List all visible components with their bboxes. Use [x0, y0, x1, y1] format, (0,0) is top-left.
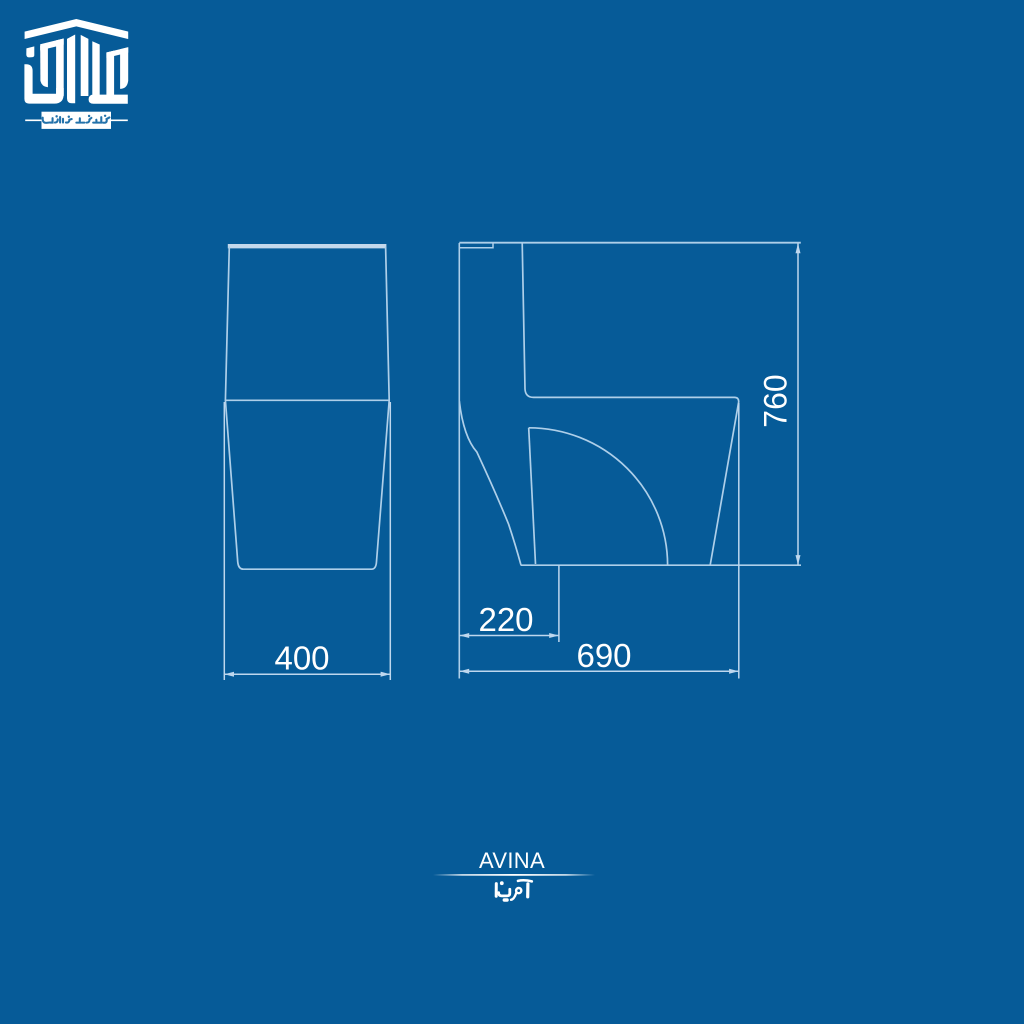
svg-text:AVINA: AVINA — [479, 848, 545, 873]
svg-text:220: 220 — [478, 601, 533, 638]
svg-text:400: 400 — [274, 640, 329, 677]
svg-text:690: 690 — [576, 637, 631, 674]
svg-text:760: 760 — [758, 374, 794, 427]
